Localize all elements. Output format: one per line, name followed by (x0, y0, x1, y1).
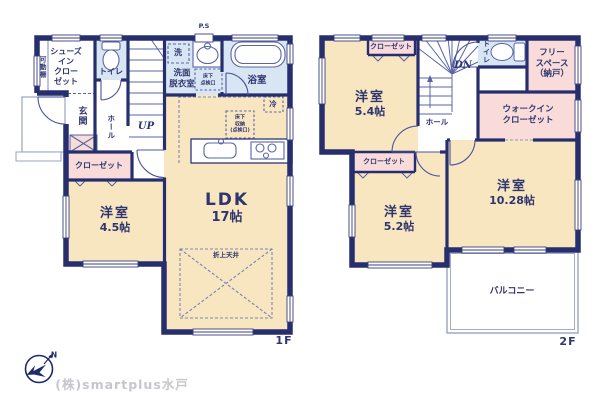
label-shoes-closet: シューズ イン クロー ゼット (50, 47, 82, 87)
bathtub-icon (231, 42, 285, 67)
label-stairs-dn: DN (454, 60, 472, 73)
label-walk-in-closet: ウォークイン クローゼット (502, 104, 553, 125)
label-ldk: LDK 17帖 (205, 191, 249, 225)
label-western-52: 洋室 5.2帖 (384, 206, 415, 234)
ldk-door-arc (137, 150, 165, 178)
room-size: 5.2帖 (384, 221, 415, 234)
porch-step (16, 152, 61, 161)
compass-bird (27, 365, 47, 378)
label-underfloor-access: 床下 点検口 (200, 74, 215, 87)
label-balcony: バルコニー (490, 286, 535, 297)
washbasin-icon (193, 41, 222, 67)
label-hall-2f: ホール (426, 117, 449, 126)
toilet-icon-2f (491, 43, 525, 61)
room-name: 洋室 (100, 207, 130, 222)
room-name: 洋室 (355, 91, 385, 106)
label-toilet-1f: トイレ (99, 67, 123, 77)
label-washer: 洗 (174, 48, 182, 58)
room-size: 5.4帖 (355, 106, 386, 119)
label-washroom: 洗面 脱衣室 (169, 68, 195, 89)
label-movable-shelf: 可動棚 (39, 56, 46, 79)
label-closet-2b: クローゼット (363, 158, 405, 167)
room-size: 17帖 (211, 210, 242, 225)
entrance-porch (22, 97, 65, 152)
label-closet-2a: クローゼット (370, 43, 412, 52)
label-underfloor-storage: 床下 収納 (点検口) (230, 114, 250, 134)
floor2-room-fills (322, 38, 578, 333)
label-hall-1f: ホール (107, 114, 115, 140)
label-western-45: 洋室 4.5帖 (100, 207, 131, 235)
room-name: 洋室 (497, 180, 527, 195)
label-free-space: フリー スペース （納戸） (535, 48, 569, 80)
room-size: 4.5帖 (100, 222, 131, 235)
label-closet-1f: クローゼット (75, 161, 123, 171)
kitchen-counter (191, 139, 292, 163)
compass-north-label: N (51, 350, 57, 359)
label-bathroom: 浴室 (247, 75, 266, 87)
room-name: LDK (205, 191, 249, 211)
company-name: (株)smartplus水戸 (55, 377, 189, 393)
label-coffered-ceiling: 折上天井 (213, 251, 239, 259)
label-entrance: 玄関 (77, 106, 86, 126)
room-name: 洋室 (384, 206, 414, 221)
floor1-label: 1F (275, 334, 292, 348)
label-pipe-space: P.S (199, 22, 210, 30)
floor2-label: 2F (559, 335, 576, 349)
label-fridge: 冷 (269, 99, 277, 108)
toilet-icon-1f (102, 42, 120, 70)
pipe-space-box (195, 34, 213, 42)
room-stairs-1f (128, 38, 165, 152)
floorplan-page: シューズ イン クロー ゼット 可動棚 トイレ 玄関 ホール UP 洗 P.S … (0, 0, 600, 400)
label-western-1028: 洋室 10.28帖 (489, 180, 535, 208)
label-stairs-up: UP (138, 121, 154, 134)
label-toilet-2f: トイレ (483, 40, 490, 64)
label-western-54: 洋室 5.4帖 (355, 91, 386, 119)
compass-icon (26, 354, 53, 383)
toilet-lobby-2f (478, 67, 527, 92)
room-size: 10.28帖 (489, 195, 535, 208)
